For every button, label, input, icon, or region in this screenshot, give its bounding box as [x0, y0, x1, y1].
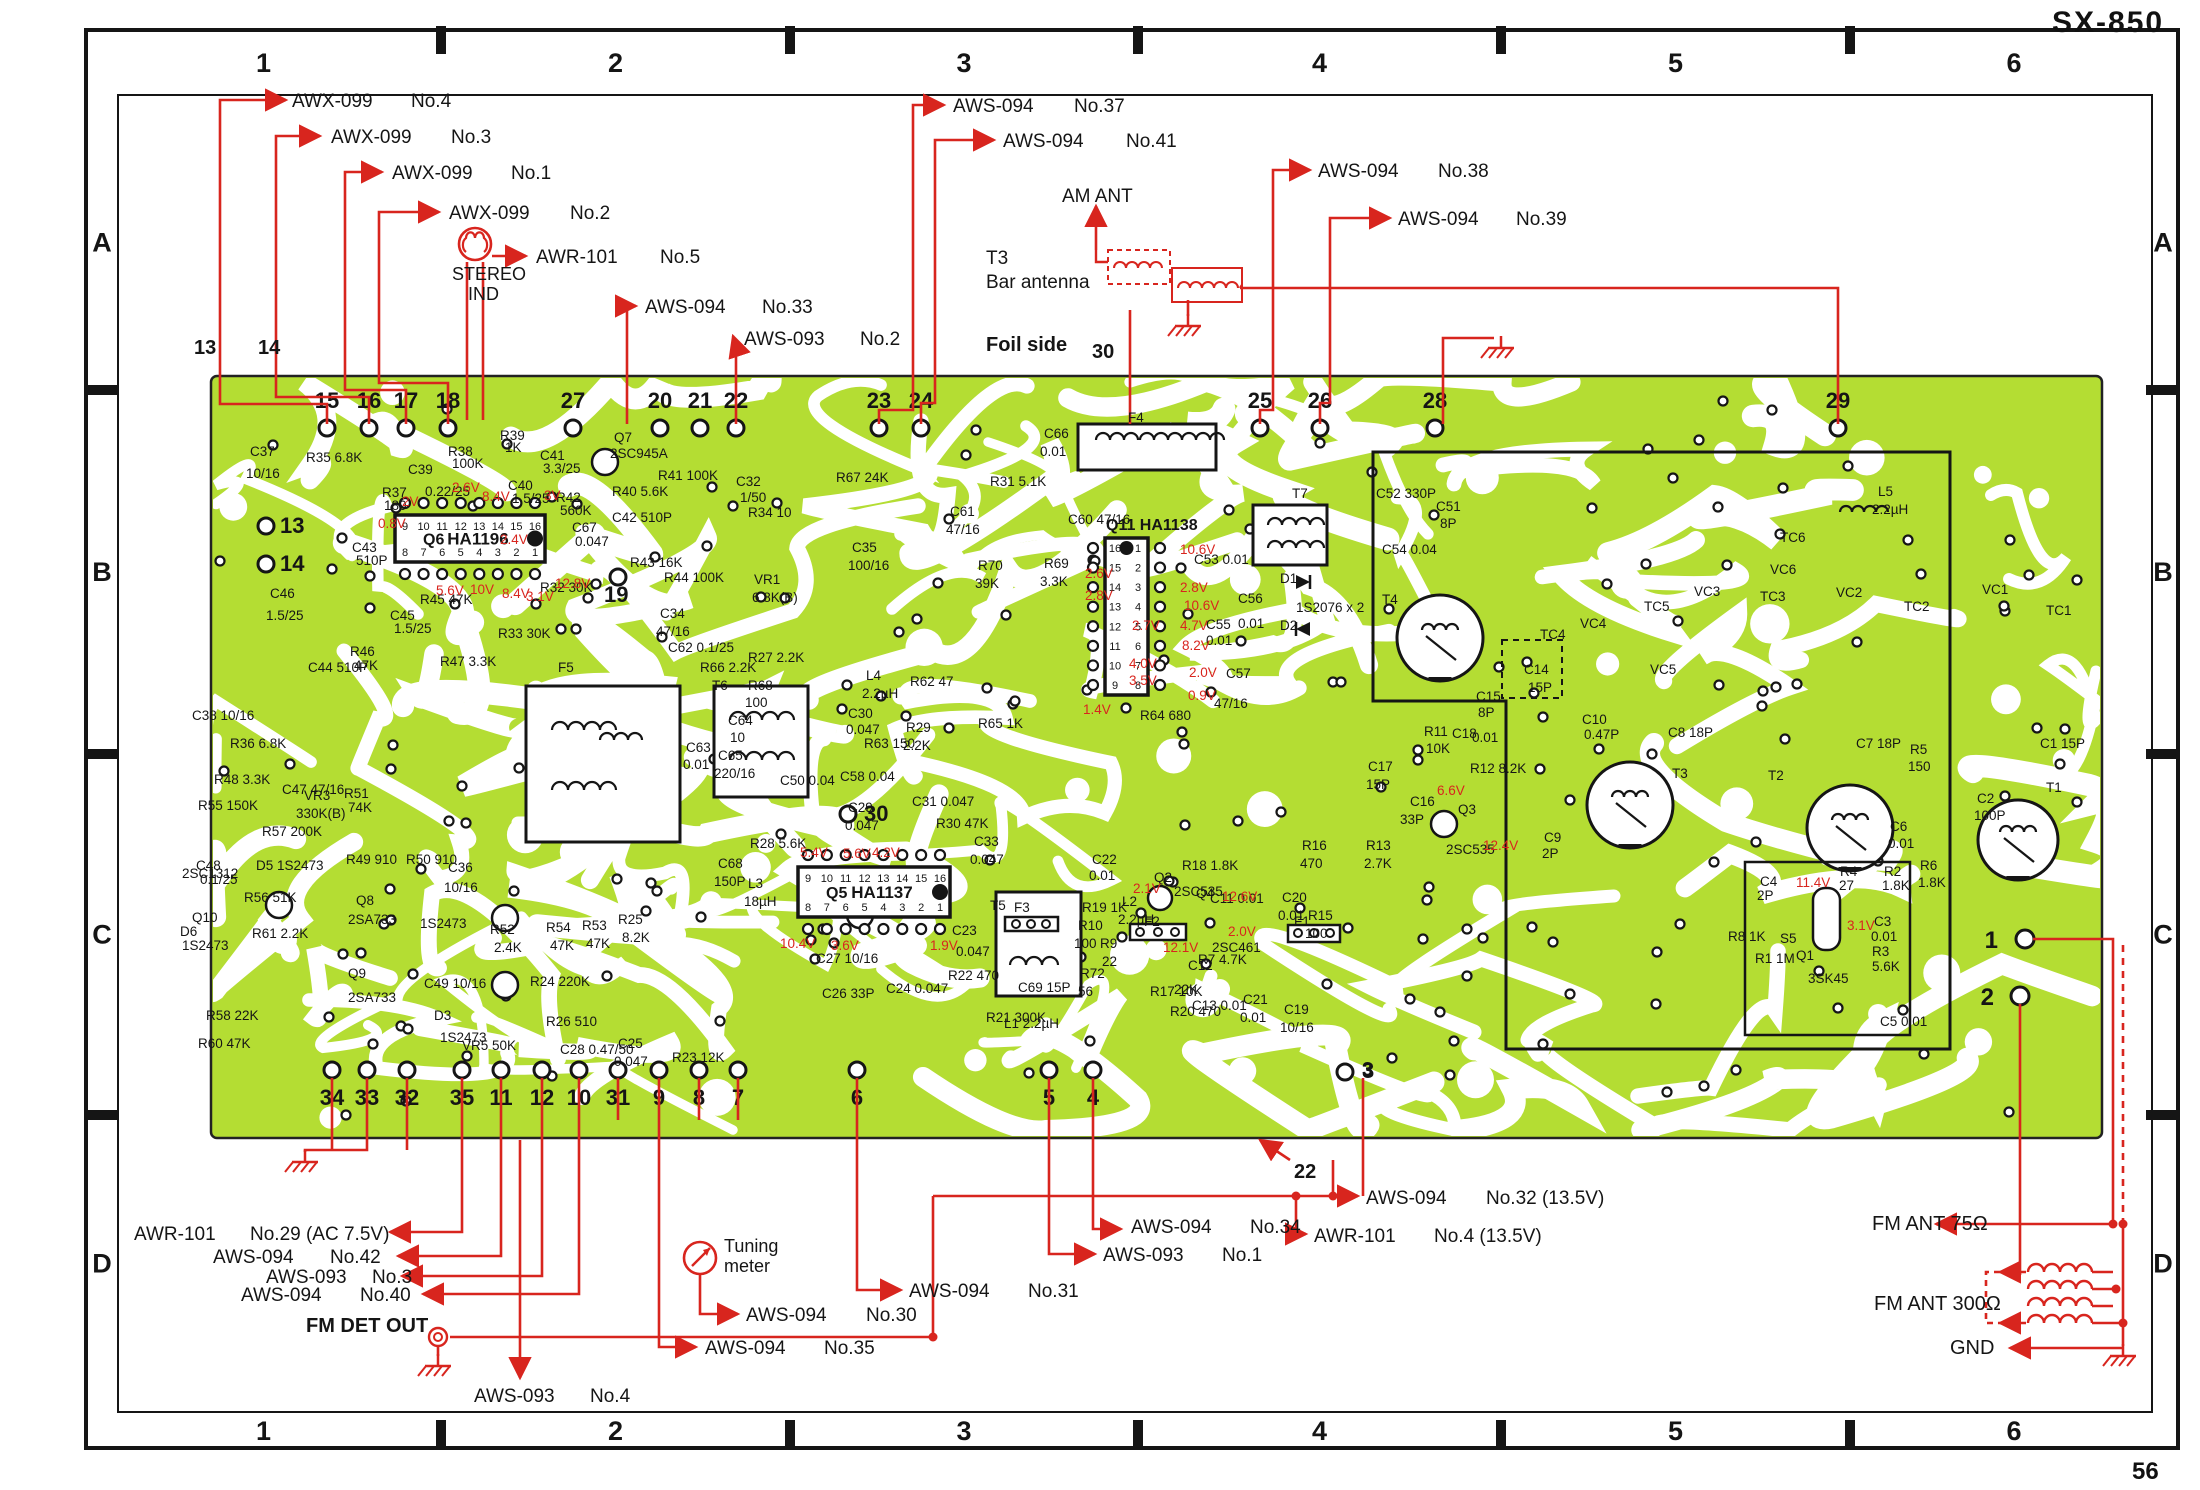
- pad: [342, 1111, 351, 1120]
- component-label: 3SK45: [1808, 971, 1849, 986]
- pad: [1155, 602, 1165, 612]
- pad: [1237, 637, 1246, 646]
- pad: [445, 817, 454, 826]
- component-label: T4: [1382, 592, 1398, 607]
- voltage-label: 3.6V: [831, 938, 859, 953]
- test-point: [1337, 1064, 1353, 1080]
- component-label: 0.047: [845, 818, 879, 833]
- component-label: 0.047: [846, 722, 880, 737]
- component-label: 1.8K: [1882, 878, 1910, 893]
- pad: [1920, 1050, 1929, 1059]
- component-label: R49 910: [346, 852, 397, 867]
- component-label: T2: [1768, 768, 1784, 783]
- component-label: 1.5/25: [266, 608, 304, 623]
- component-label: C27 10/16: [816, 951, 878, 966]
- pad: [2006, 536, 2015, 545]
- wire: [1184, 326, 1192, 336]
- terminal-label: 1: [1985, 927, 1998, 954]
- pad: [1206, 919, 1215, 928]
- component-label: C1 15P: [2040, 736, 2085, 751]
- component-label: C30: [848, 706, 873, 721]
- component-label: VC6: [1770, 562, 1796, 577]
- component-label: C15: [1476, 689, 1501, 704]
- grid-col-label: 4: [1312, 48, 1327, 78]
- component-label: R28 5.6K: [750, 836, 806, 851]
- pad: [1002, 611, 1011, 620]
- callout-part-label: AWS-093: [1103, 1245, 1184, 1266]
- component-label: C39: [408, 462, 433, 477]
- component-label: 27: [1839, 878, 1854, 893]
- box: [1172, 268, 1242, 302]
- pad: [1781, 735, 1790, 744]
- callout-part-label: AWX-099: [449, 203, 530, 224]
- junction-dot: [2112, 1285, 2121, 1294]
- component-label: C23: [952, 923, 977, 938]
- grid-col-label: 6: [2006, 1416, 2021, 1446]
- pad: [2073, 576, 2082, 585]
- pad: [1155, 641, 1165, 651]
- pad: [357, 949, 366, 958]
- pad: [1088, 602, 1098, 612]
- component-label: C4: [1760, 874, 1778, 889]
- component-label: 2SA733: [348, 990, 396, 1005]
- test-point-number: 19: [604, 582, 628, 607]
- component-label: 2P: [1542, 846, 1559, 861]
- tuning-meter-label: Tuning: [724, 1236, 778, 1256]
- ic-pin-number: 16: [934, 873, 946, 885]
- component-label: 0.01: [1040, 444, 1066, 459]
- pad: [1088, 641, 1098, 651]
- component-label: 10/16: [246, 466, 280, 481]
- junction-dot: [2109, 1220, 2118, 1229]
- pad: [1436, 1008, 1445, 1017]
- component-label: C12: [1188, 958, 1213, 973]
- component-label: D1: [1280, 571, 1297, 586]
- component-label: C57: [1226, 666, 1251, 681]
- component-label: C34: [660, 606, 685, 621]
- junction-dot: [2119, 1319, 2128, 1328]
- component-label: C62 0.1/25: [668, 640, 734, 655]
- component-label: R64 680: [1140, 708, 1191, 723]
- pad: [369, 1040, 378, 1049]
- test-point: [258, 556, 274, 572]
- component-label: 8.2K: [622, 930, 650, 945]
- component-label: 0.01: [1472, 730, 1498, 745]
- component-label: C20: [1282, 890, 1307, 905]
- box: [1133, 26, 1143, 54]
- ic-part: HA1137: [851, 883, 912, 902]
- component-label: C2: [1977, 791, 1994, 806]
- callout-part-label: AWX-099: [331, 127, 412, 148]
- pad: [1566, 990, 1575, 999]
- pad: [572, 625, 581, 634]
- component-label: 10K: [1426, 741, 1450, 756]
- pad: [530, 569, 540, 579]
- pad: [1834, 1004, 1843, 1013]
- voltage-label: 12.6V: [1222, 889, 1257, 904]
- component-label: R48 3.3K: [214, 772, 270, 787]
- pad: [1323, 980, 1332, 989]
- component-label: TC5: [1644, 599, 1670, 614]
- pad: [1155, 563, 1165, 573]
- component-label: R41 100K: [658, 468, 718, 483]
- pad: [1086, 1037, 1095, 1046]
- edge-pin: [454, 1062, 470, 1078]
- grid-col-label: 5: [1668, 48, 1683, 78]
- component-label: 0.01: [1278, 908, 1304, 923]
- pad: [1719, 397, 1728, 406]
- pad: [1088, 621, 1098, 631]
- component-label: R22 470: [948, 968, 999, 983]
- component-label: C67: [572, 520, 597, 535]
- pad: [703, 542, 712, 551]
- callout-part-label: AWS-094: [1366, 1188, 1447, 1209]
- box: [2146, 1110, 2178, 1120]
- pad: [1904, 536, 1913, 545]
- pad: [338, 534, 347, 543]
- component-label: 220/16: [714, 766, 755, 781]
- ic-pin-number: 6: [439, 547, 445, 559]
- component-label: C66: [1044, 426, 1069, 441]
- bar-antenna-label: T3: [986, 248, 1008, 269]
- component-label: R56 51K: [244, 890, 297, 905]
- component-label: F3: [1014, 900, 1030, 915]
- box: [785, 1420, 795, 1448]
- box: [2146, 385, 2178, 395]
- component-label: 560K: [560, 503, 592, 518]
- component-label: R69: [1044, 556, 1069, 571]
- ic-pin-number: 1: [1135, 543, 1141, 555]
- foil-clearance: [905, 629, 942, 666]
- component-label: R63 150: [864, 736, 915, 751]
- voltage-label: 4.2V: [872, 845, 900, 860]
- pad: [2033, 724, 2042, 733]
- edge-pin: [1085, 1062, 1101, 1078]
- pad: [2056, 760, 2065, 769]
- component-label: TC2: [1904, 599, 1930, 614]
- grid-col-label: 2: [608, 48, 623, 78]
- pad: [1715, 681, 1724, 690]
- component-label: R43 16K: [630, 555, 683, 570]
- coil-icon: [2028, 1264, 2092, 1272]
- component-label: R4: [1840, 864, 1858, 879]
- callout-part-label: AWR-101: [1314, 1226, 1396, 1247]
- ic-pin-number: 2: [513, 547, 519, 559]
- component-label: TC1: [2046, 603, 2072, 618]
- wire: [1192, 326, 1200, 336]
- component-label: 100: [1074, 936, 1097, 951]
- ic-pin-number: 4: [880, 902, 886, 914]
- grid-col-label: 1: [256, 1416, 271, 1446]
- ic-pin-number: 11: [1109, 641, 1120, 653]
- component-label: VR3: [304, 788, 330, 803]
- pad: [1316, 439, 1325, 448]
- component-label: VR1: [754, 572, 780, 587]
- pad: [286, 760, 295, 769]
- component-label: 8P: [1478, 705, 1495, 720]
- terminal: [2011, 987, 2029, 1005]
- component-label: C10: [1582, 712, 1607, 727]
- pad: [1155, 543, 1165, 553]
- pad: [1225, 506, 1234, 515]
- pad: [945, 724, 954, 733]
- ic-pin-number: 6: [1135, 641, 1141, 653]
- callout-part-label: AWX-099: [292, 91, 373, 112]
- foil-clearance: [1457, 1061, 1494, 1098]
- edge-pin: [565, 420, 581, 436]
- pad: [1603, 580, 1612, 589]
- wire: [442, 1366, 450, 1376]
- stereo-ind-label: STEREO: [452, 264, 526, 284]
- component-label: 0.01: [1206, 633, 1232, 648]
- component-label: C22: [1092, 852, 1117, 867]
- callout-number-label: No.38: [1438, 161, 1489, 182]
- grid-row-label: B: [2153, 557, 2173, 587]
- box: [436, 1420, 446, 1448]
- pad: [1450, 1037, 1459, 1046]
- voltage-label: 0.9V: [1188, 688, 1216, 703]
- pad: [458, 782, 467, 791]
- pad: [1344, 924, 1353, 933]
- fm-det-out-label: FM DET OUT: [306, 1315, 428, 1337]
- component-label: 2.2µH: [1872, 502, 1908, 517]
- component-label: 150P: [714, 874, 746, 889]
- pcb-diagram: 1 1 2 2 3 3 4 4 5 5 6 6 A A B B C C D D: [0, 0, 2200, 1490]
- grid-row-label: C: [92, 920, 112, 950]
- component-label: R30 47K: [936, 816, 989, 831]
- pad: [1752, 838, 1761, 847]
- ic-pin-number: 1: [937, 902, 943, 914]
- pad: [860, 924, 870, 934]
- pad: [419, 498, 429, 508]
- test-point: [258, 518, 274, 534]
- pad: [1700, 1082, 1709, 1091]
- wire: [293, 1162, 301, 1172]
- callout-number-label: No.42: [330, 1247, 381, 1268]
- component-label: F2: [1144, 914, 1160, 929]
- voltage-label: 4.7V: [1180, 618, 1208, 633]
- component-label: 100: [745, 695, 768, 710]
- model-title: SX-850: [2052, 6, 2164, 40]
- component-label: C60 47/16: [1068, 512, 1130, 527]
- foil-clearance: [2029, 488, 2049, 508]
- voltage-label: 6.6V: [1437, 783, 1465, 798]
- pad: [1732, 1066, 1741, 1075]
- pad: [404, 1025, 413, 1034]
- component-label: T6: [712, 678, 728, 693]
- component-label: 47K: [354, 658, 378, 673]
- component-label: C69 15P: [1018, 980, 1071, 995]
- pad: [1463, 972, 1472, 981]
- annotation-wire: [1240, 285, 1242, 288]
- component-label: C32: [736, 474, 761, 489]
- box: [436, 26, 446, 54]
- component-label: VC5: [1650, 662, 1676, 677]
- pad: [642, 907, 651, 916]
- manual-page: SX-850 56 1 1 2 2 3 3 4 4 5 5 6 6 A A B …: [0, 0, 2200, 1490]
- callout-part-label: AWS-094: [1003, 131, 1084, 152]
- junction-dot: [2119, 1220, 2128, 1229]
- pad: [841, 924, 851, 934]
- component-label: 56: [1078, 984, 1093, 999]
- pad: [972, 426, 981, 435]
- component-label: 0.047: [575, 534, 609, 549]
- component-label: R8 1K: [1728, 929, 1766, 944]
- pad: [1917, 570, 1926, 579]
- component-label: R31 5.1K: [990, 474, 1046, 489]
- component-label: 330K(B): [296, 806, 346, 821]
- fm-ant-300-label: FM ANT 300Ω: [1874, 1293, 2001, 1315]
- component-label: C29: [848, 800, 873, 815]
- ic-pin-number: 1: [532, 547, 538, 559]
- jack-icon: [434, 1333, 442, 1341]
- component-label: 2SC945A: [610, 446, 668, 461]
- component-label: C56: [1238, 591, 1263, 606]
- pad: [1388, 1054, 1397, 1063]
- voltage-label: 2.8V: [1180, 580, 1208, 595]
- callout-number-label: No.29 (AC 7.5V): [250, 1224, 389, 1245]
- box: [1078, 424, 1216, 470]
- component-label: C51: [1436, 499, 1461, 514]
- component-label: R25: [618, 912, 643, 927]
- component-label: D5 1S2473: [256, 858, 324, 873]
- terminal: [2016, 930, 2034, 948]
- stereo-ind-label: IND: [468, 284, 499, 304]
- component-label: C54 0.04: [1382, 542, 1437, 557]
- pad: [1423, 896, 1432, 905]
- callout-number-label: No.3: [451, 127, 491, 148]
- component-label: R44 100K: [664, 570, 724, 585]
- pad: [1648, 750, 1657, 759]
- pad: [1539, 713, 1548, 722]
- grid-col-label: 4: [1312, 1416, 1327, 1446]
- component-label: T7: [1292, 486, 1308, 501]
- transistor: [1431, 811, 1457, 837]
- pad: [386, 885, 395, 894]
- edge-pin: [651, 1062, 667, 1078]
- component-label: 47K: [550, 938, 574, 953]
- pad: [1652, 1000, 1661, 1009]
- tuning-meter-label: meter: [724, 1256, 770, 1276]
- component-label: C6: [1890, 819, 1907, 834]
- component-label: 8P: [1440, 516, 1457, 531]
- pad: [803, 924, 813, 934]
- component-label: R52: [490, 922, 515, 937]
- component-label: R19 1K: [1082, 900, 1127, 915]
- foil-clearance: [1611, 567, 1643, 599]
- ic-pin-number: 16: [1109, 543, 1121, 555]
- callout-part-label: AWS-094: [1398, 209, 1479, 230]
- callout-number-label: No.32 (13.5V): [1486, 1188, 1604, 1209]
- pad: [1136, 928, 1144, 936]
- component-label: C61: [950, 504, 975, 519]
- component-label: TC4: [1540, 627, 1566, 642]
- component-label: R61 2.2K: [252, 926, 308, 941]
- pad: [339, 950, 348, 959]
- terminal-label: 2: [1981, 984, 1994, 1011]
- ic-pin-number: 10: [1109, 660, 1121, 672]
- box: [84, 385, 118, 395]
- voltage-label: 3V: [544, 488, 561, 503]
- pad: [1154, 928, 1162, 936]
- component-label: C5 0.01: [1880, 1014, 1927, 1029]
- component-label: Q7: [614, 430, 632, 445]
- pad: [1853, 638, 1862, 647]
- callout-part-label: AWS-094: [213, 1247, 294, 1268]
- component-label: R18 1.8K: [1182, 858, 1238, 873]
- voltage-label: 2.6V: [452, 480, 480, 495]
- component-label: R33 30K: [498, 626, 551, 641]
- ic-pin-number: 9: [1112, 680, 1118, 692]
- voltage-label: 1.4V: [1083, 702, 1111, 717]
- voltage-label: 2.8V: [1085, 588, 1113, 603]
- voltage-label: 12.4V: [1483, 838, 1518, 853]
- component-label: R21 300K: [986, 1010, 1046, 1025]
- pad: [1779, 484, 1788, 493]
- component-label: 1.8K: [1918, 875, 1946, 890]
- pad: [1177, 564, 1186, 573]
- coil-icon: [2028, 1281, 2092, 1289]
- callout-part-label: AWS-094: [705, 1338, 786, 1359]
- callout-number-label: No.41: [1126, 131, 1177, 152]
- component-label: R1 1M: [1755, 951, 1795, 966]
- component-label: 1.5/25: [394, 621, 432, 636]
- component-label: C50 0.04: [780, 773, 835, 788]
- component-label: TC6: [1780, 530, 1806, 545]
- pad: [729, 502, 738, 511]
- component-label: 74K: [348, 800, 372, 815]
- pad: [1642, 560, 1651, 569]
- component-label: C24 0.047: [886, 981, 948, 996]
- wire: [1176, 326, 1184, 336]
- voltage-label: 2V: [402, 494, 419, 509]
- wire: [1497, 348, 1505, 358]
- component-label: 2.2µH: [862, 686, 898, 701]
- component-label: C17: [1368, 759, 1393, 774]
- foil-clearance: [460, 610, 484, 634]
- component-label: 2SC1312: [182, 866, 238, 881]
- component-label: 39K: [975, 576, 999, 591]
- component-label: C9: [1544, 830, 1561, 845]
- wire: [309, 1162, 317, 1172]
- voltage-label: 10.4V: [780, 936, 815, 951]
- pad: [1549, 938, 1558, 947]
- component-label: C35: [852, 540, 877, 555]
- coil-icon: [1114, 262, 1162, 268]
- pad: [1714, 503, 1723, 512]
- component-label: 10/16: [1280, 1020, 1314, 1035]
- fm-ant-75-label: FM ANT 75Ω: [1872, 1213, 1988, 1235]
- test-point-number: 13: [280, 513, 304, 538]
- component-label: T3: [1672, 766, 1688, 781]
- component-label: T5: [990, 898, 1006, 913]
- edge-pin: [849, 1062, 865, 1078]
- pad: [1536, 765, 1545, 774]
- component-label: 2.7K: [1364, 856, 1392, 871]
- callout-part-label: AWS-094: [1131, 1217, 1212, 1238]
- component-label: 0.01: [1888, 836, 1914, 851]
- component-label: VC4: [1580, 616, 1607, 631]
- component-label: C36: [448, 860, 473, 875]
- component-label: 15P: [1366, 777, 1390, 792]
- lamp-filament: [463, 232, 487, 252]
- pad: [1155, 582, 1165, 592]
- voltage-label: 2.0V: [1189, 665, 1217, 680]
- component-label: R6: [1920, 858, 1937, 873]
- component-label: 47K: [586, 936, 610, 951]
- component-label: R23 12K: [672, 1050, 725, 1065]
- component-label: R47 3.3K: [440, 654, 496, 669]
